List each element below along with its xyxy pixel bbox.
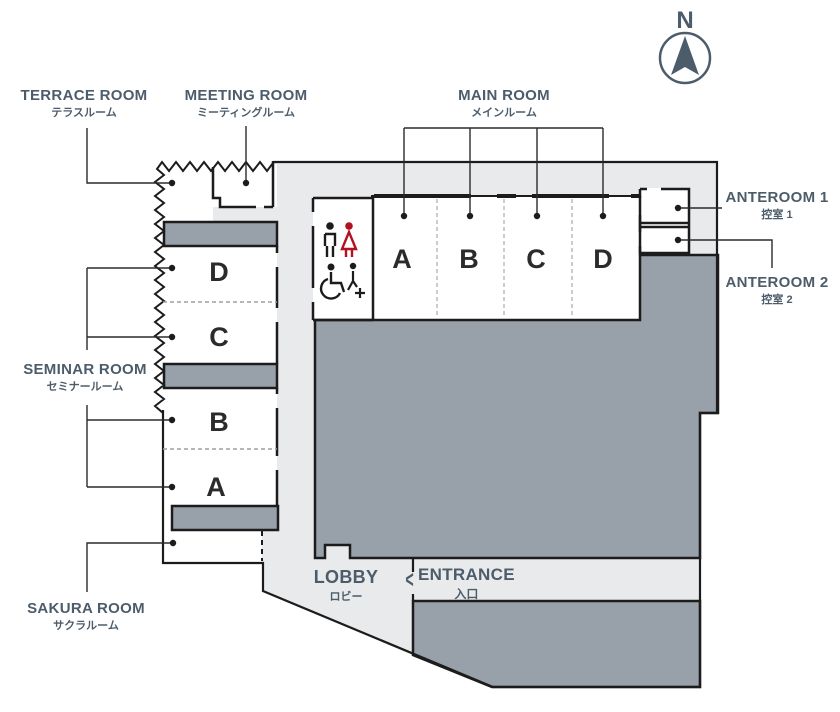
seminar-room-label: SEMINAR ROOM セミナールーム (23, 361, 147, 394)
main-room-label-en: MAIN ROOM (458, 87, 550, 104)
meeting-room-label: MEETING ROOM ミーティングルーム (185, 87, 308, 120)
anteroom2-label-ja: 控室 2 (725, 294, 828, 307)
meeting-room-label-ja: ミーティングルーム (185, 107, 308, 120)
anteroom1-label: ANTEROOM 1 控室 1 (725, 189, 828, 222)
entrance-label: ENTRANCE 入口 (418, 565, 515, 601)
sakura-room-label: SAKURA ROOM サクラルーム (27, 600, 145, 633)
anteroom1-label-en: ANTEROOM 1 (725, 189, 828, 206)
main-room-letter-c: C (526, 244, 546, 274)
anteroom2-label-en: ANTEROOM 2 (725, 274, 828, 291)
meeting-dot (243, 180, 249, 186)
terrace-room-label: TERRACE ROOM テラスルーム (21, 87, 148, 120)
main-room-label: MAIN ROOM メインルーム (458, 87, 550, 120)
terrace-dot (169, 180, 175, 186)
anteroom2-dot (675, 237, 681, 243)
wall-bar-bottom (172, 506, 278, 530)
lobby-label-ja: ロビー (314, 591, 379, 604)
sakura-callout-line (87, 543, 173, 592)
wall-bar-top (164, 222, 277, 246)
seminar-room-letter-a: A (206, 472, 226, 502)
bottom-right-block (413, 601, 700, 687)
seminar-room-label-ja: セミナールーム (23, 381, 147, 394)
seminar-b-dot (169, 417, 175, 423)
lobby-label: LOBBY ロビー (314, 567, 379, 603)
entrance-label-en: ENTRANCE (418, 565, 515, 585)
seminar-room-letter-b: B (209, 407, 229, 437)
terrace-room-label-ja: テラスルーム (21, 107, 148, 120)
seminar-a-dot (169, 484, 175, 490)
seminar-room-label-en: SEMINAR ROOM (23, 361, 147, 378)
main-room-letter-b: B (459, 244, 479, 274)
anteroom1-label-ja: 控室 1 (725, 209, 828, 222)
meeting-room-label-en: MEETING ROOM (185, 87, 308, 104)
sakura-room-area (162, 530, 262, 562)
north-needle (671, 36, 699, 75)
entrance-label-ja: 入口 (418, 588, 515, 602)
sakura-room-label-ja: サクラルーム (27, 620, 145, 633)
main-room-letter-a: A (392, 244, 412, 274)
sakura-room-label-en: SAKURA ROOM (27, 600, 145, 617)
anteroom2-label: ANTEROOM 2 控室 2 (725, 274, 828, 307)
sakura-dot (170, 540, 176, 546)
seminar-c-dot (169, 334, 175, 340)
floor-plan: A B C D D C B A (0, 0, 840, 712)
main-room-letter-d: D (593, 244, 613, 274)
north-label: N (676, 7, 693, 34)
anteroom1-dot (675, 205, 681, 211)
restroom-area (313, 197, 373, 320)
main-c-dot (534, 213, 540, 219)
compass-icon: N (660, 7, 710, 83)
seminar-room-letter-d: D (209, 257, 229, 287)
entrance-arrow-icon: < (405, 567, 413, 595)
main-room-label-ja: メインルーム (458, 107, 550, 120)
wall-bar-middle (164, 364, 277, 388)
seminar-room-letter-c: C (209, 322, 229, 352)
seminar-d-dot (169, 265, 175, 271)
main-a-dot (401, 213, 407, 219)
lobby-label-en: LOBBY (314, 567, 379, 588)
main-b-dot (467, 213, 473, 219)
meeting-room-lower-gray-patch (213, 207, 277, 222)
main-d-dot (600, 213, 606, 219)
anteroom-area (640, 188, 689, 253)
terrace-room-label-en: TERRACE ROOM (21, 87, 148, 104)
